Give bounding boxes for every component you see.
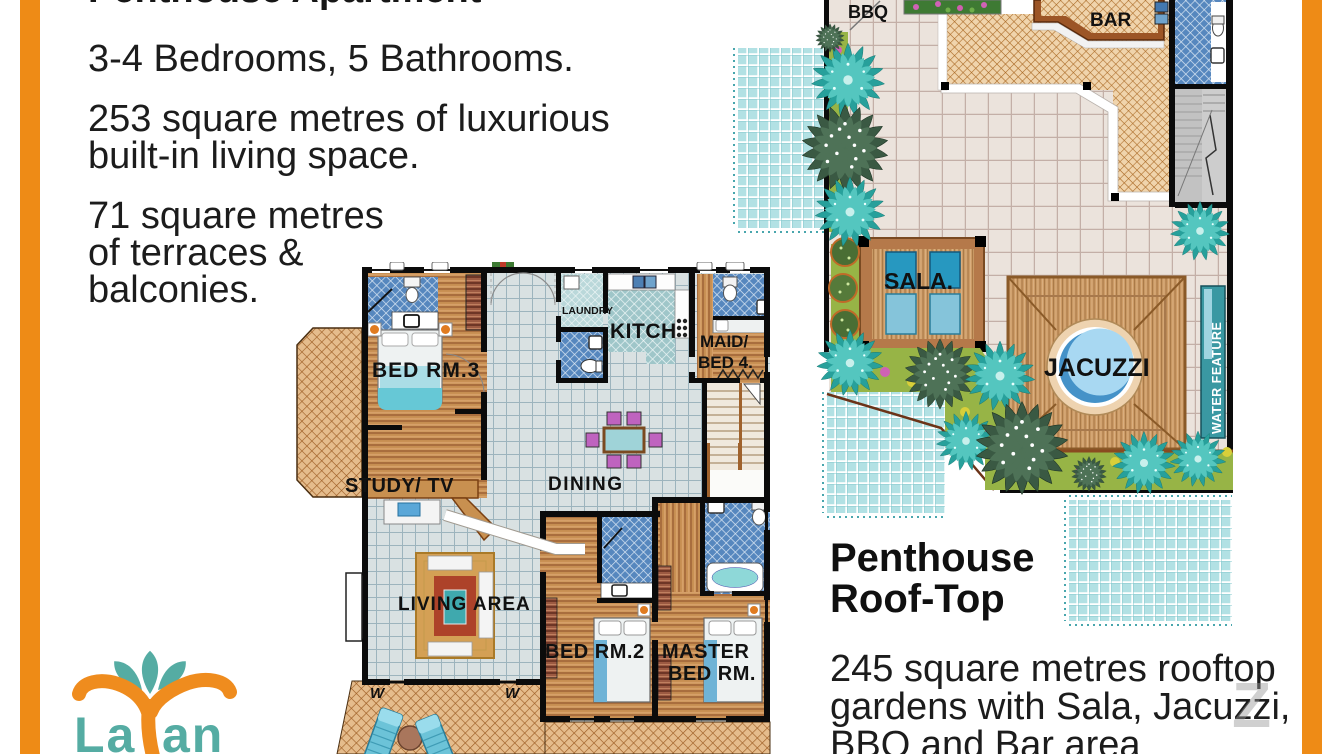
svg-text:BED RM.3: BED RM.3 — [372, 359, 480, 382]
svg-text:BAR: BAR — [1090, 10, 1131, 31]
svg-text:W: W — [505, 685, 521, 702]
svg-text:BBQ: BBQ — [848, 2, 888, 22]
svg-text:KITCH: KITCH — [610, 320, 677, 343]
svg-text:La: La — [74, 707, 136, 754]
svg-text:an: an — [162, 707, 224, 754]
svg-text:JACUZZI: JACUZZI — [1044, 354, 1150, 382]
svg-text:W: W — [370, 685, 386, 702]
svg-text:STUDY/ TV: STUDY/ TV — [345, 475, 454, 497]
svg-text:SALA.: SALA. — [884, 268, 953, 294]
svg-text:DINING: DINING — [548, 474, 624, 495]
svg-text:BED RM.2: BED RM.2 — [545, 641, 645, 663]
svg-text:WATER FEATURE: WATER FEATURE — [1210, 322, 1224, 434]
svg-text:LIVING AREA: LIVING AREA — [398, 594, 531, 615]
svg-text:LAUNDRY: LAUNDRY — [562, 305, 613, 317]
